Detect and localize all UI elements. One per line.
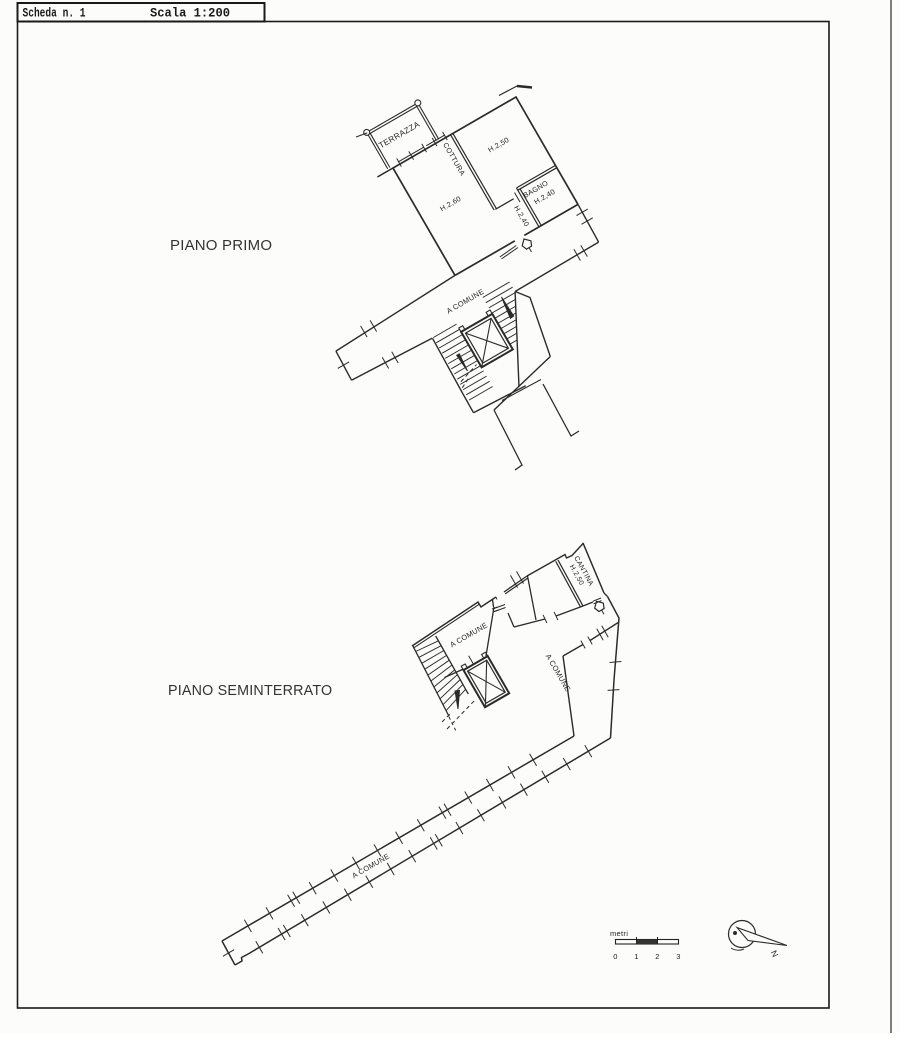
svg-text:2: 2 bbox=[655, 952, 659, 961]
svg-text:PIANO SEMINTERRATO: PIANO SEMINTERRATO bbox=[168, 683, 332, 699]
svg-text:Scheda n. 1: Scheda n. 1 bbox=[23, 7, 86, 21]
svg-text:PIANO PRIMO: PIANO PRIMO bbox=[170, 237, 272, 254]
svg-text:0: 0 bbox=[613, 952, 617, 961]
svg-text:metri: metri bbox=[610, 929, 628, 938]
svg-text:3: 3 bbox=[676, 952, 680, 961]
svg-text:Scala 1:200: Scala 1:200 bbox=[150, 7, 230, 21]
svg-text:1: 1 bbox=[634, 952, 638, 961]
